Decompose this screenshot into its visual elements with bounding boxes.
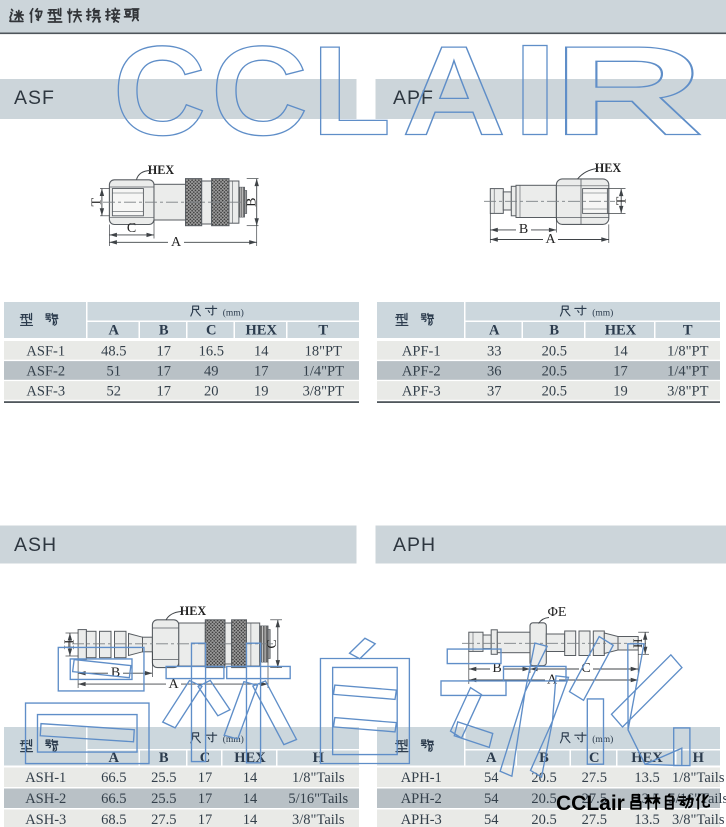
svg-text:17: 17 bbox=[157, 384, 172, 400]
svg-text:APH-1: APH-1 bbox=[401, 770, 442, 786]
svg-text:ASF-1: ASF-1 bbox=[26, 344, 65, 360]
svg-text:3/8"PT: 3/8"PT bbox=[303, 384, 345, 400]
svg-text:17: 17 bbox=[254, 364, 269, 380]
svg-text:51: 51 bbox=[107, 364, 122, 380]
svg-text:C: C bbox=[206, 323, 216, 339]
svg-text:66.5: 66.5 bbox=[101, 770, 126, 786]
svg-text:27.5: 27.5 bbox=[151, 812, 176, 827]
svg-text:APF-3: APF-3 bbox=[402, 384, 441, 400]
svg-text:T: T bbox=[318, 323, 328, 339]
svg-text:ASF-3: ASF-3 bbox=[26, 384, 65, 400]
svg-text:C: C bbox=[127, 221, 136, 236]
svg-text:T: T bbox=[90, 197, 105, 206]
svg-text:13.5: 13.5 bbox=[634, 770, 659, 786]
svg-text:HEX: HEX bbox=[605, 323, 637, 339]
svg-text:B: B bbox=[159, 323, 169, 339]
svg-text:ASF: ASF bbox=[14, 87, 55, 109]
svg-text:25.5: 25.5 bbox=[151, 770, 176, 786]
svg-text:C: C bbox=[265, 639, 280, 648]
svg-text:18"PT: 18"PT bbox=[305, 344, 342, 360]
svg-text:HEX: HEX bbox=[595, 161, 622, 175]
svg-text:A: A bbox=[402, 20, 506, 162]
svg-text:52: 52 bbox=[107, 384, 122, 400]
svg-text:14: 14 bbox=[254, 344, 269, 360]
svg-text:1/4"PT: 1/4"PT bbox=[303, 364, 345, 380]
svg-text:54: 54 bbox=[484, 770, 499, 786]
svg-text:66.5: 66.5 bbox=[101, 791, 126, 807]
svg-text:CCLair: CCLair bbox=[556, 792, 625, 815]
svg-text:20.5: 20.5 bbox=[531, 791, 556, 807]
svg-text:(mm): (mm) bbox=[223, 307, 244, 318]
svg-text:27.5: 27.5 bbox=[582, 770, 607, 786]
svg-text:APH: APH bbox=[393, 534, 436, 556]
svg-text:16.5: 16.5 bbox=[199, 344, 224, 360]
svg-text:68.5: 68.5 bbox=[101, 812, 126, 827]
svg-text:20.5: 20.5 bbox=[542, 364, 567, 380]
svg-text:1/8"PT: 1/8"PT bbox=[667, 344, 709, 360]
svg-text:20.5: 20.5 bbox=[531, 812, 556, 827]
svg-text:A: A bbox=[109, 323, 120, 339]
svg-text:R: R bbox=[552, 20, 704, 162]
svg-text:17: 17 bbox=[613, 364, 628, 380]
svg-text:ASH-3: ASH-3 bbox=[25, 812, 66, 827]
svg-text:19: 19 bbox=[254, 384, 269, 400]
svg-text:A: A bbox=[489, 323, 500, 339]
svg-text:C: C bbox=[113, 20, 206, 162]
svg-text:3/8"PT: 3/8"PT bbox=[667, 384, 709, 400]
svg-text:APH-2: APH-2 bbox=[401, 791, 442, 807]
svg-text:48.5: 48.5 bbox=[101, 344, 126, 360]
svg-text:25.5: 25.5 bbox=[151, 791, 176, 807]
svg-text:A: A bbox=[171, 235, 182, 250]
svg-text:17: 17 bbox=[198, 791, 213, 807]
svg-text:A: A bbox=[486, 750, 497, 766]
svg-text:20.5: 20.5 bbox=[542, 384, 567, 400]
svg-text:(mm): (mm) bbox=[592, 307, 613, 318]
svg-text:ASF-2: ASF-2 bbox=[26, 364, 65, 380]
svg-text:B: B bbox=[159, 750, 169, 766]
svg-text:13.5: 13.5 bbox=[634, 812, 659, 827]
svg-text:54: 54 bbox=[484, 812, 499, 827]
svg-text:1/8"Tails: 1/8"Tails bbox=[292, 770, 345, 786]
svg-text:B: B bbox=[111, 666, 120, 681]
svg-text:APH-3: APH-3 bbox=[401, 812, 442, 827]
svg-text:5/16"Tails: 5/16"Tails bbox=[288, 791, 348, 807]
svg-text:ASH: ASH bbox=[14, 534, 57, 556]
svg-text:20: 20 bbox=[204, 384, 219, 400]
svg-text:T: T bbox=[683, 323, 693, 339]
svg-text:17: 17 bbox=[157, 344, 172, 360]
svg-text:20.5: 20.5 bbox=[542, 344, 567, 360]
svg-text:36: 36 bbox=[487, 364, 502, 380]
svg-text:ΦE: ΦE bbox=[548, 605, 567, 620]
svg-text:3/8"Tails: 3/8"Tails bbox=[292, 812, 345, 827]
svg-text:A: A bbox=[545, 232, 556, 247]
svg-text:HEX: HEX bbox=[246, 323, 278, 339]
svg-text:B: B bbox=[549, 323, 559, 339]
svg-text:C: C bbox=[211, 20, 308, 162]
svg-text:B: B bbox=[245, 198, 260, 207]
svg-text:19: 19 bbox=[613, 384, 628, 400]
svg-text:17: 17 bbox=[157, 364, 172, 380]
svg-text:37: 37 bbox=[487, 384, 502, 400]
svg-text:17: 17 bbox=[198, 770, 213, 786]
svg-text:17: 17 bbox=[198, 812, 213, 827]
svg-text:T: T bbox=[615, 196, 630, 205]
svg-text:H: H bbox=[693, 750, 705, 766]
svg-text:HEX: HEX bbox=[234, 750, 266, 766]
svg-text:B: B bbox=[519, 222, 528, 237]
svg-text:C: C bbox=[581, 661, 590, 676]
svg-text:33: 33 bbox=[487, 344, 502, 360]
svg-text:14: 14 bbox=[243, 770, 258, 786]
svg-text:(mm): (mm) bbox=[592, 734, 613, 745]
svg-text:APF-2: APF-2 bbox=[402, 364, 441, 380]
svg-text:1/4"PT: 1/4"PT bbox=[667, 364, 709, 380]
svg-text:14: 14 bbox=[613, 344, 628, 360]
svg-text:HEX: HEX bbox=[148, 163, 175, 177]
svg-text:14: 14 bbox=[243, 812, 258, 827]
svg-text:1/8"Tails: 1/8"Tails bbox=[672, 770, 725, 786]
svg-text:HEX: HEX bbox=[180, 604, 207, 618]
svg-text:ASH-2: ASH-2 bbox=[25, 791, 66, 807]
svg-text:APF-1: APF-1 bbox=[402, 344, 441, 360]
svg-text:54: 54 bbox=[484, 791, 499, 807]
svg-text:ASH-1: ASH-1 bbox=[25, 770, 66, 786]
svg-text:49: 49 bbox=[204, 364, 219, 380]
svg-text:L: L bbox=[312, 20, 391, 162]
svg-text:14: 14 bbox=[243, 791, 258, 807]
svg-text:3/8"Tails: 3/8"Tails bbox=[672, 812, 725, 827]
